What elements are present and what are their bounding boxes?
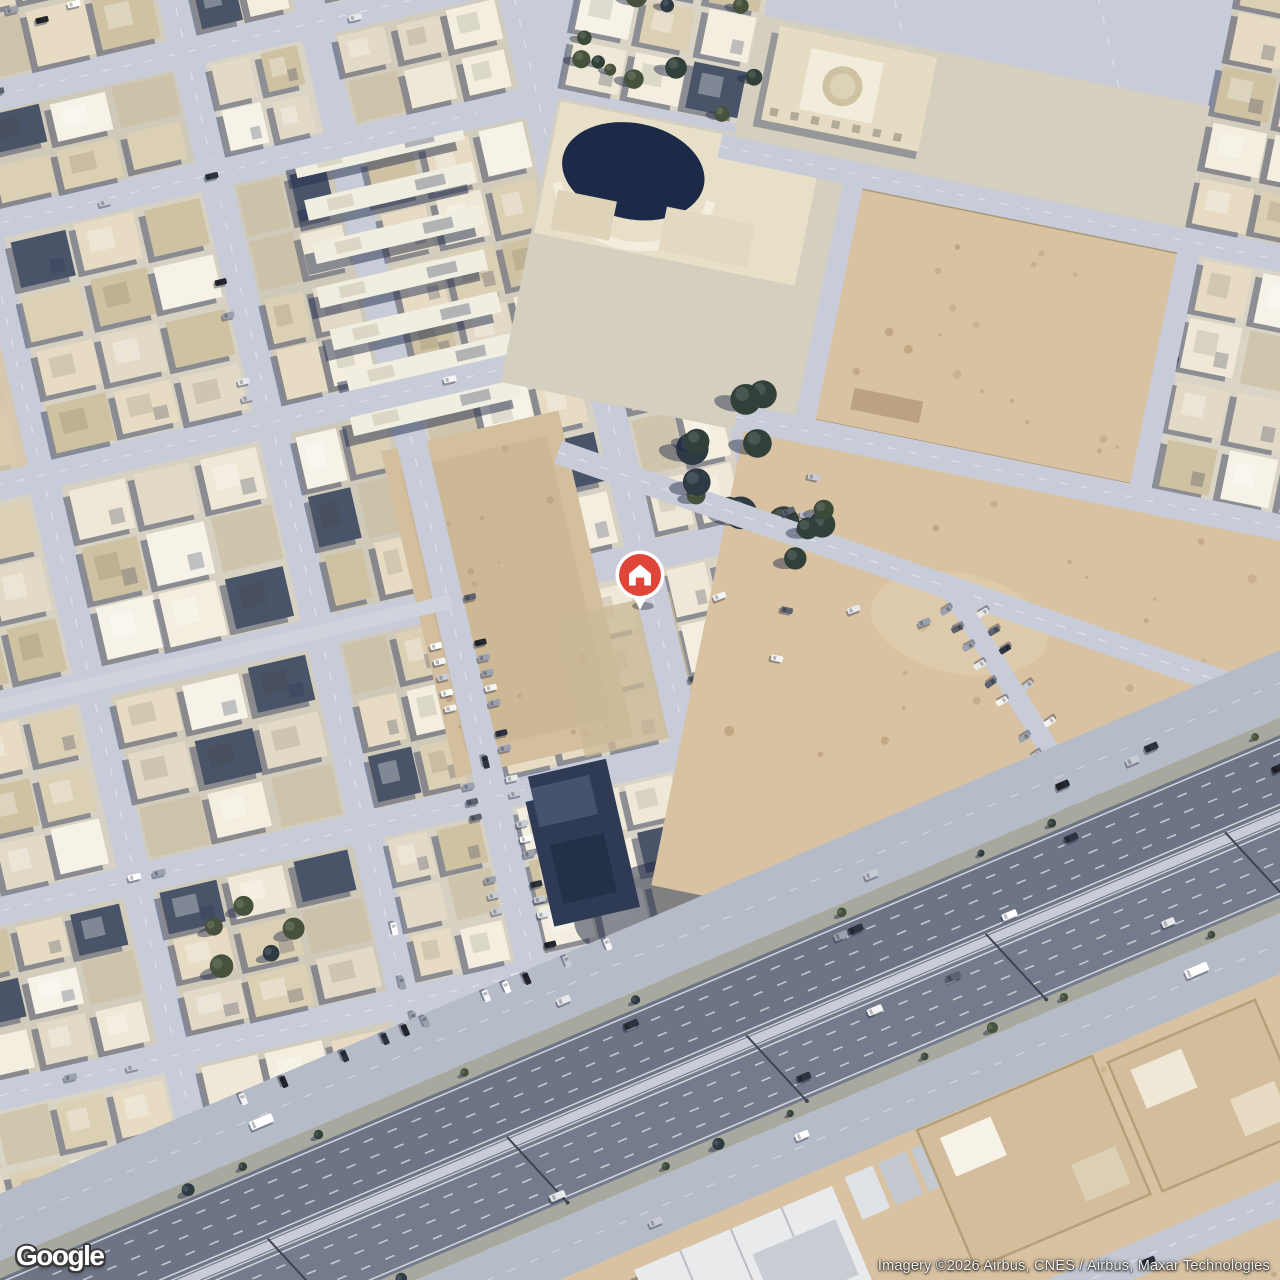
map-viewport[interactable]: Google Imagery ©2026 Airbus, CNES / Airb… — [0, 0, 1280, 1280]
satellite-map-canvas[interactable] — [0, 0, 1280, 1280]
attribution-text: Imagery ©2026 Airbus, CNES / Airbus, Max… — [878, 1258, 1270, 1274]
google-logo[interactable]: Google — [16, 1240, 103, 1272]
